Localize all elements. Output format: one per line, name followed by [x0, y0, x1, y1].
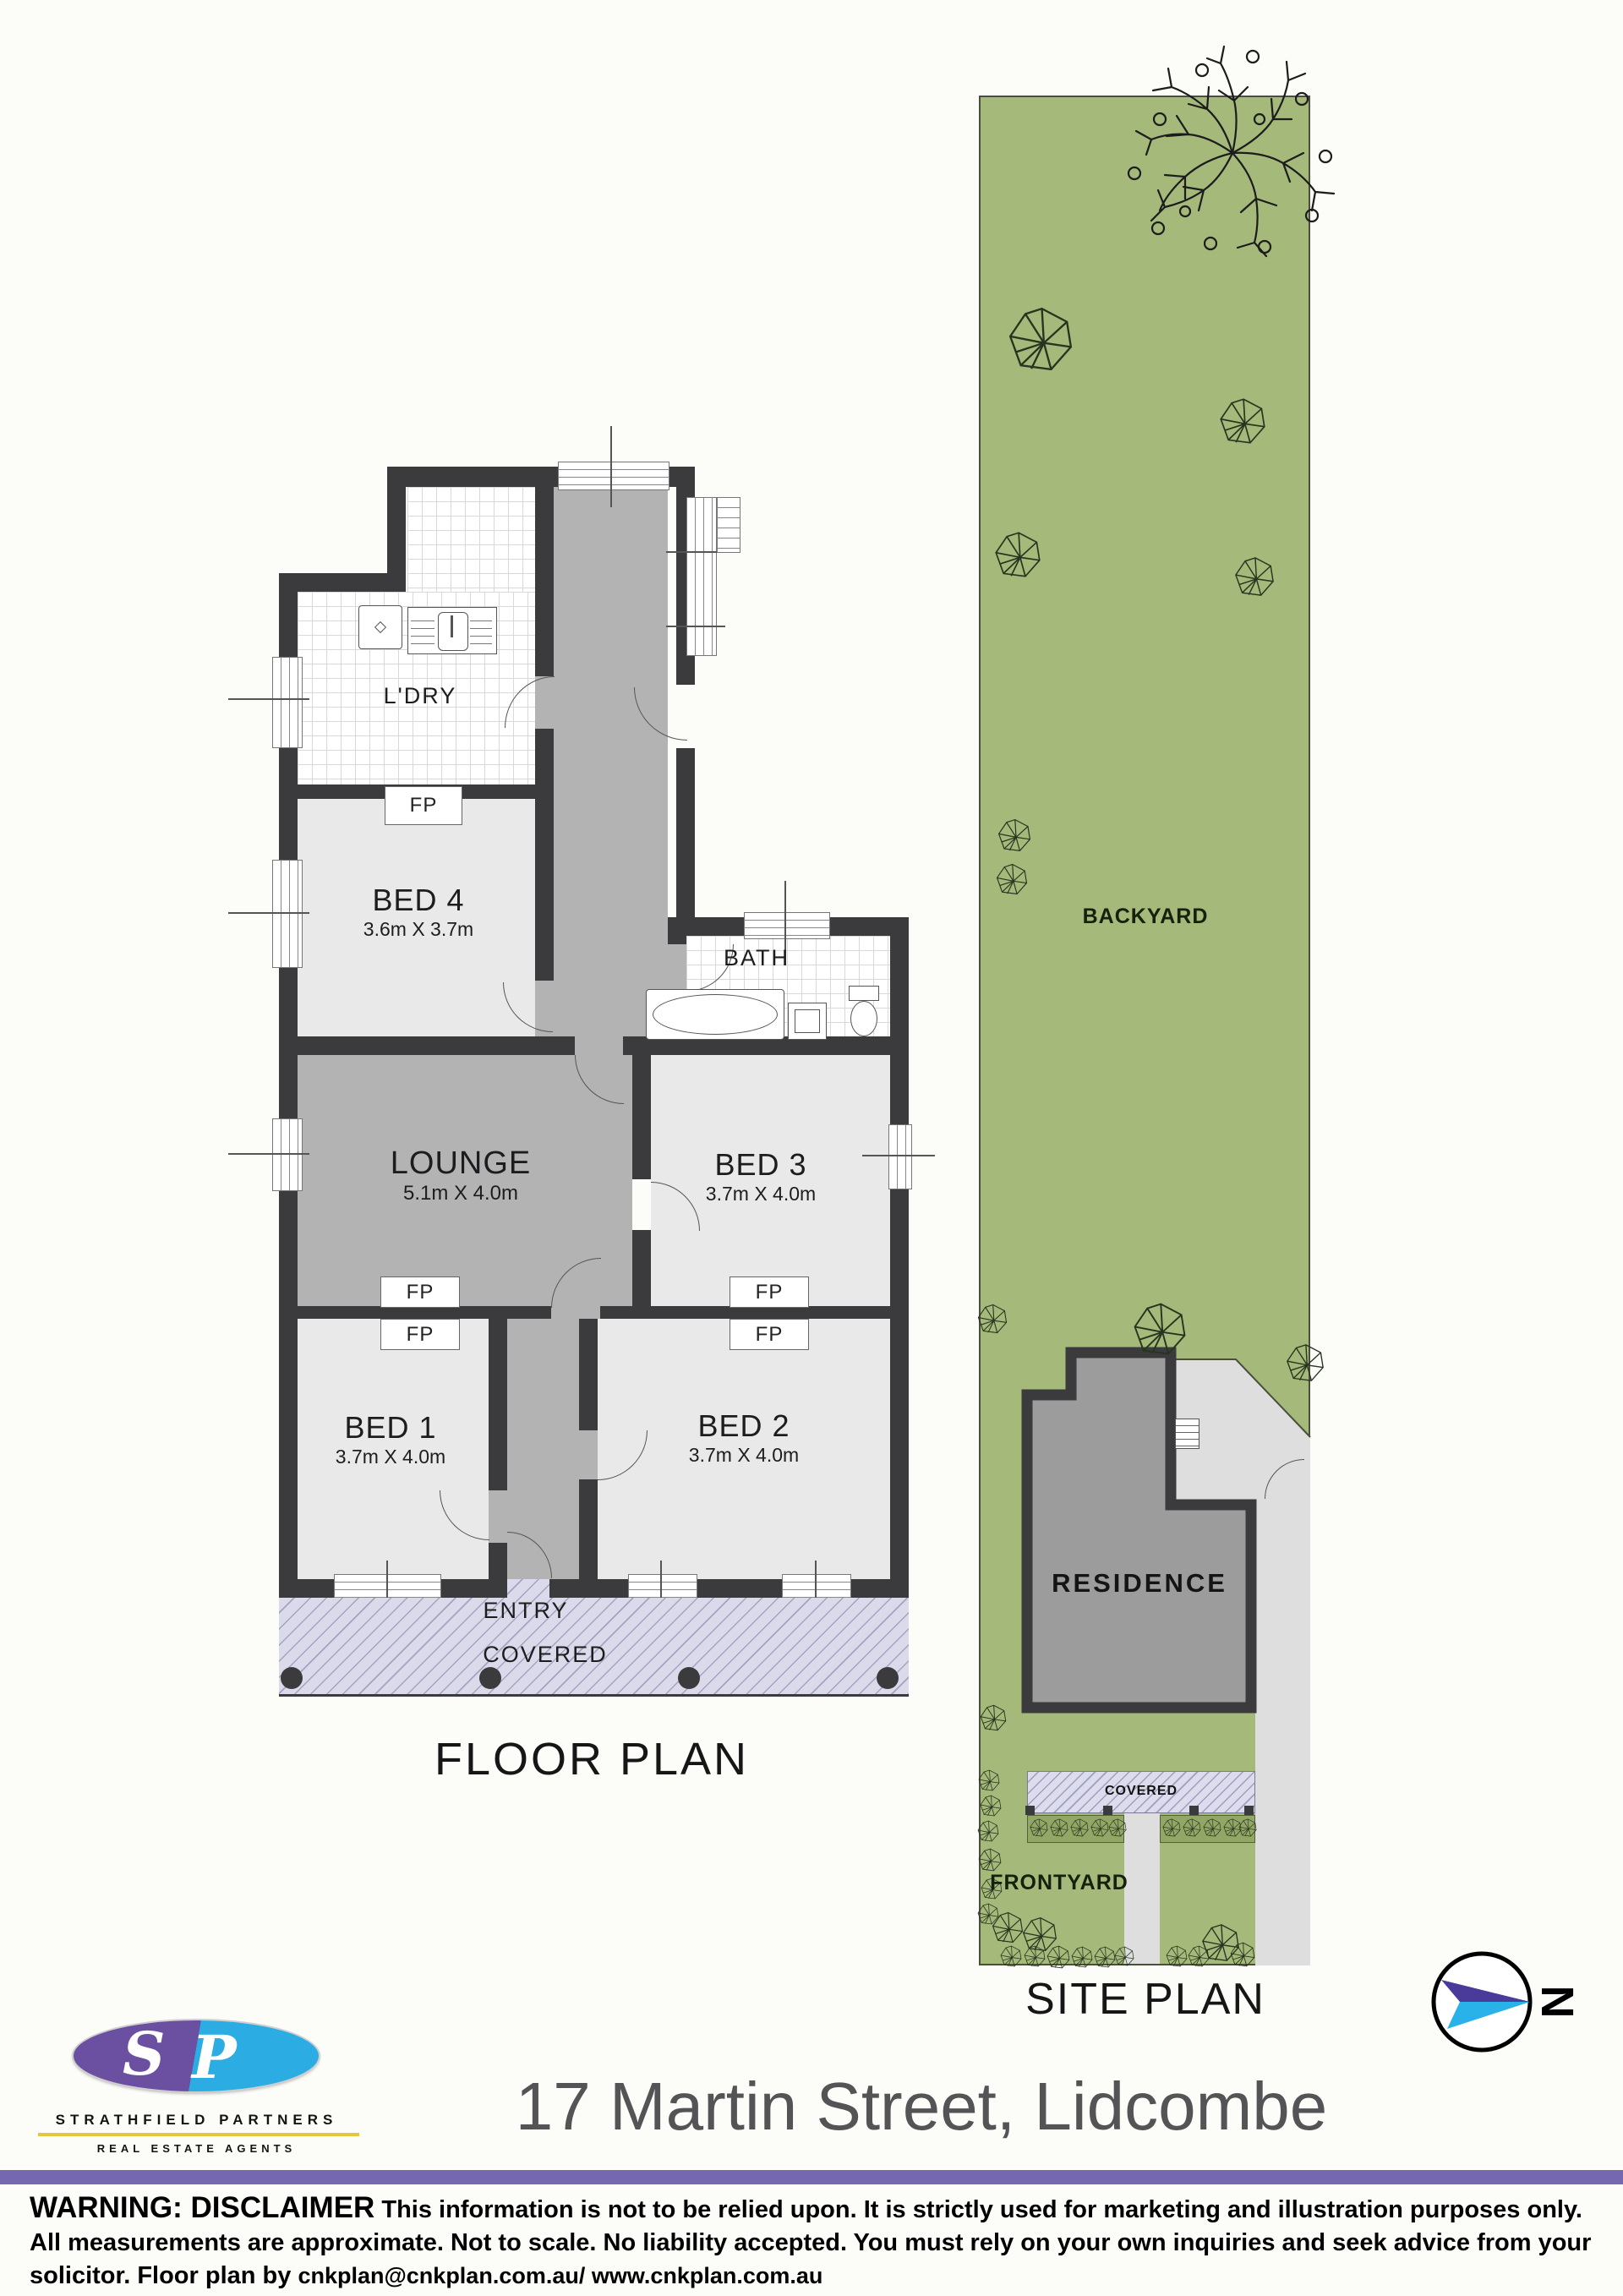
north-arrow-icon — [1427, 1947, 1537, 2057]
window-tick — [610, 426, 612, 507]
wall-segment — [579, 1479, 598, 1579]
bush-icon — [996, 863, 1028, 895]
porch-post — [1189, 1806, 1199, 1815]
bush-icon — [997, 818, 1031, 852]
window — [558, 462, 669, 490]
bush-icon — [1024, 1945, 1046, 1967]
bush-icon — [977, 1304, 1008, 1334]
porch-post — [479, 1667, 501, 1689]
disclaimer-line3-prefix: solicitor. Floor plan by — [30, 2262, 298, 2289]
bathtub-inner — [653, 994, 778, 1035]
window — [272, 860, 303, 968]
wall-segment — [549, 1579, 909, 1598]
porch-post — [1244, 1806, 1254, 1815]
wall-segment — [535, 790, 554, 981]
bed1-dims: 3.7m X 4.0m — [306, 1446, 475, 1468]
bush-icon — [980, 1795, 1002, 1817]
entry-label: ENTRY — [441, 1598, 610, 1624]
shower-inner — [795, 1009, 820, 1033]
bush-icon — [978, 1769, 1000, 1791]
wall-segment — [489, 1543, 507, 1579]
bush-icon — [978, 1848, 1002, 1872]
bush-icon — [1000, 1945, 1022, 1967]
fireplace: FP — [380, 1276, 460, 1308]
window — [888, 1124, 912, 1189]
bush-icon — [1166, 1945, 1188, 1967]
residence-label: RESIDENCE — [1030, 1568, 1249, 1599]
north-label: N — [1532, 1976, 1582, 2027]
fireplace: FP — [385, 786, 462, 825]
toilet-tank — [849, 986, 879, 1001]
bed3-dims: 3.7m X 4.0m — [676, 1183, 845, 1205]
porch-post — [1103, 1806, 1112, 1815]
fireplace: FP — [380, 1319, 460, 1350]
door-gap — [575, 1036, 623, 1055]
porch-post — [877, 1667, 899, 1689]
window-tick — [228, 1153, 309, 1155]
side-window — [686, 497, 717, 656]
residence-building — [972, 1331, 1327, 1720]
bush-icon — [1114, 1946, 1134, 1966]
address-title: 17 Martin Street, Lidcombe — [338, 2068, 1505, 2146]
north-letter: N — [1531, 1986, 1583, 2019]
lounge-dims: 5.1m X 4.0m — [355, 1182, 566, 1205]
flower-icon — [1203, 1818, 1221, 1837]
bath-label: BATH — [672, 945, 841, 971]
bush-icon — [977, 1820, 999, 1842]
flower-icon — [1238, 1818, 1257, 1837]
hallway-floor — [554, 487, 668, 1036]
disclaimer-line2: All measurements are approximate. Not to… — [30, 2227, 1610, 2260]
sp-logo: S P — [74, 2020, 319, 2091]
tree-icon — [1120, 38, 1348, 266]
bush-icon — [1046, 1945, 1070, 1969]
fireplace: FP — [730, 1319, 809, 1350]
site-plan-title: SITE PLAN — [955, 1974, 1336, 2025]
door-gap — [551, 1306, 600, 1319]
bed2-dims: 3.7m X 4.0m — [659, 1444, 828, 1467]
fireplace-label: FP — [410, 794, 438, 817]
fireplace: FP — [730, 1276, 809, 1308]
external-steps — [717, 497, 740, 553]
laundry-floor — [407, 487, 535, 592]
wall-segment — [535, 729, 554, 790]
flower-icon — [1162, 1818, 1181, 1837]
bush-icon — [980, 1704, 1007, 1731]
floorplan-document: RESIDENCE COVERED — [0, 0, 1623, 2296]
flower-icon — [1108, 1818, 1127, 1837]
bed4-dims: 3.6m X 3.7m — [334, 918, 503, 941]
logo-letter-p: P — [192, 2022, 237, 2091]
bed3-label: BED 3 — [676, 1147, 845, 1183]
fireplace-label: FP — [407, 1323, 434, 1347]
courtyard-stairs — [1175, 1419, 1199, 1449]
porch-covered-label: COVERED — [461, 1642, 630, 1668]
sink-tap — [451, 615, 453, 637]
wall-segment — [600, 1306, 909, 1319]
bed4-label: BED 4 — [334, 883, 503, 918]
bush-icon — [1230, 1942, 1255, 1967]
window — [272, 657, 303, 748]
brand-rule — [38, 2133, 359, 2136]
company-tagline: REAL ESTATE AGENTS — [25, 2142, 368, 2155]
disclaimer-line3-links: cnkplan@cnkplan.com.au/ www.cnkplan.com.… — [298, 2263, 822, 2288]
wall-segment — [579, 1319, 598, 1430]
wall-segment — [535, 487, 554, 676]
bush-icon — [1008, 306, 1074, 372]
fireplace-label: FP — [756, 1281, 784, 1304]
wall-segment — [890, 936, 909, 1579]
floor-plan-title: FLOOR PLAN — [380, 1733, 803, 1785]
window-tick — [228, 912, 309, 914]
fireplace-label: FP — [756, 1323, 784, 1347]
flower-icon — [1030, 1818, 1048, 1837]
flower-icon — [1090, 1818, 1109, 1837]
bush-icon — [1234, 556, 1275, 597]
frontyard-label: FRONTYARD — [987, 1871, 1131, 1895]
wall-segment — [676, 748, 695, 917]
door-gap — [489, 1490, 507, 1543]
porch-edge — [279, 1694, 909, 1697]
bush-icon — [1071, 1946, 1093, 1968]
flower-icon — [1070, 1818, 1089, 1837]
sink-drainboard — [470, 614, 492, 646]
ldry-label: L'DRY — [336, 683, 505, 709]
wall-segment — [279, 1036, 575, 1055]
window — [744, 912, 830, 939]
disclaimer-block: WARNING: DISCLAIMER This information is … — [30, 2191, 1610, 2293]
wall-segment — [632, 1055, 651, 1179]
entry-threshold — [507, 1579, 549, 1599]
company-name: STRATHFIELD PARTNERS — [25, 2112, 368, 2129]
wall-segment — [489, 1319, 507, 1490]
porch-post — [678, 1667, 700, 1689]
logo-letter-s: S — [123, 2020, 166, 2089]
bed1-label: BED 1 — [306, 1410, 475, 1446]
porch-post — [1025, 1806, 1035, 1815]
disclaimer-warning: WARNING: DISCLAIMER — [30, 2191, 374, 2224]
window-tick — [228, 698, 309, 700]
flower-icon — [1050, 1818, 1068, 1837]
wall-segment — [279, 1306, 551, 1319]
window-tick — [666, 626, 725, 627]
lounge-label: LOUNGE — [355, 1145, 566, 1182]
site-covered-label: COVERED — [1057, 1784, 1226, 1799]
backyard-label: BACKYARD — [1061, 905, 1230, 929]
disclaimer-line1-text: This information is not to be relied upo… — [381, 2196, 1582, 2223]
window — [272, 1118, 303, 1191]
bush-icon — [1133, 1302, 1187, 1356]
porch-post — [281, 1667, 303, 1689]
bush-icon — [994, 531, 1041, 578]
sink-drainboard — [411, 614, 434, 646]
disclaimer-line1: WARNING: DISCLAIMER This information is … — [30, 2191, 1610, 2227]
toilet-bowl — [850, 1001, 877, 1036]
bed2-label: BED 2 — [659, 1408, 828, 1444]
bush-icon — [1094, 1946, 1116, 1968]
disclaimer-line3: solicitor. Floor plan by cnkplan@cnkplan… — [30, 2260, 1610, 2293]
bush-icon — [1286, 1343, 1325, 1382]
wall-segment — [279, 573, 406, 592]
sink-bowl — [438, 612, 468, 651]
divider-bar — [0, 2170, 1623, 2184]
door-gap — [579, 1430, 598, 1479]
flower-icon — [1183, 1818, 1201, 1837]
wall-segment — [632, 1230, 651, 1306]
fireplace-label: FP — [407, 1281, 434, 1304]
bush-icon — [1219, 397, 1266, 445]
bush-icon — [992, 1911, 1024, 1943]
window-tick — [862, 1155, 935, 1156]
wall-segment — [668, 936, 686, 944]
